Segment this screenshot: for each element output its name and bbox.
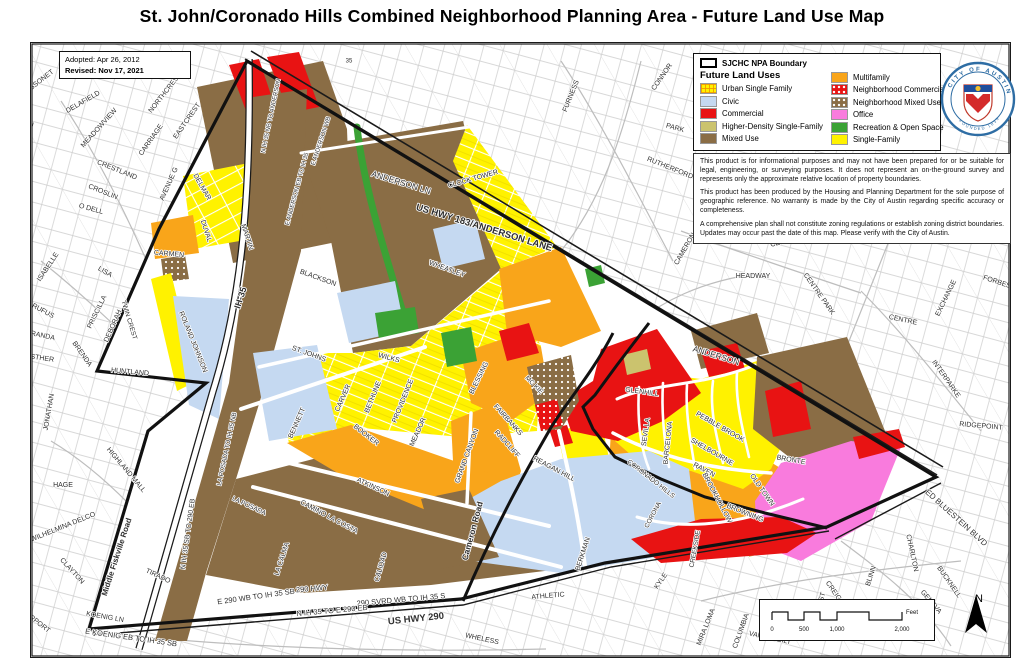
legend-title: Future Land Uses (700, 70, 823, 81)
adopted-date: Adopted: Apr 26, 2012 (65, 55, 185, 64)
legend-label: Commercial (722, 109, 764, 118)
street-label: HEADWAY (736, 273, 771, 280)
scale-tick: 1,000 (829, 627, 845, 633)
legend-label: Multifamily (853, 73, 890, 82)
legend-item: Urban Single Family (700, 83, 823, 94)
legend-swatch (831, 84, 848, 95)
legend-item: Recreation & Open Space (831, 122, 946, 133)
legend-swatch (700, 133, 717, 144)
legend-swatch (700, 96, 717, 107)
street-label: HAGE (53, 482, 73, 489)
scale-unit: Feet (906, 610, 918, 616)
map-page: { "title": "St. John/Coronado Hills Comb… (0, 0, 1024, 666)
legend-item: Single-Family (831, 134, 946, 145)
disclaimer-paragraph: This product has been produced by the Ho… (700, 189, 1004, 215)
legend-item: Mixed Use (700, 133, 823, 144)
legend-item: Neighborhood Commercial (831, 84, 946, 95)
disclaimer-text: This product is for informational purpos… (693, 153, 1011, 244)
map-frame: BISSONETDELAFIELDGUADALUPEMEADOWVIEWNORT… (30, 42, 1011, 658)
boundary-swatch (700, 58, 717, 68)
legend-swatch (831, 122, 848, 133)
scale-tick: 2,000 (894, 627, 910, 633)
north-arrow: N (959, 593, 999, 655)
legend-column-2: MultifamilyNeighborhood CommercialNeighb… (831, 72, 946, 146)
legend-swatch (831, 109, 848, 120)
legend-item: Multifamily (831, 72, 946, 83)
legend-label: Neighborhood Mixed Use (853, 98, 941, 107)
legend-label: Single-Family (853, 135, 900, 144)
legend-label: Recreation & Open Space (853, 123, 944, 132)
legend-item: Neighborhood Mixed Use (831, 97, 946, 108)
legend-label: Higher-Density Single-Family (722, 122, 823, 131)
north-arrow-glyph (965, 595, 987, 633)
disclaimer-paragraph: This product is for informational purpos… (700, 158, 1004, 184)
legend-label: Neighborhood Commercial (853, 85, 946, 94)
legend-label: Mixed Use (722, 134, 759, 143)
legend-swatch (831, 97, 848, 108)
map-dates-box: Adopted: Apr 26, 2012 Revised: Nov 17, 2… (59, 51, 191, 79)
legend-item: Civic (700, 96, 823, 107)
scale-bar-steps (772, 612, 902, 620)
boundary-label: SJCHC NPA Boundary (722, 59, 807, 68)
legend-label: Urban Single Family (722, 84, 792, 93)
page-title: St. John/Coronado Hills Combined Neighbo… (0, 6, 1024, 27)
legend-item: Commercial (700, 108, 823, 119)
disclaimer-paragraph: A comprehensive plan shall not constitut… (700, 221, 1004, 239)
legend-swatch (831, 134, 848, 145)
legend-label: Office (853, 110, 873, 119)
scale-tick: 0 (770, 627, 774, 633)
legend-swatch (700, 121, 717, 132)
legend-swatch (831, 72, 848, 83)
legend-swatch (700, 83, 717, 94)
city-of-austin-seal: CITY OF AUSTIN FOUNDED 1839 (939, 57, 1017, 141)
scale-bar: 05001,0002,000Feet (759, 599, 935, 641)
legend-item: Higher-Density Single-Family (700, 121, 823, 132)
street-label: 35 (346, 59, 353, 65)
legend: SJCHC NPA Boundary Future Land Uses Urba… (693, 53, 941, 151)
legend-column-1: Urban Single FamilyCivicCommercialHigher… (700, 83, 823, 144)
legend-swatch (700, 108, 717, 119)
legend-label: Civic (722, 97, 739, 106)
scale-tick: 500 (799, 627, 810, 633)
revised-date: Revised: Nov 17, 2021 (65, 66, 185, 75)
legend-item: Office (831, 109, 946, 120)
